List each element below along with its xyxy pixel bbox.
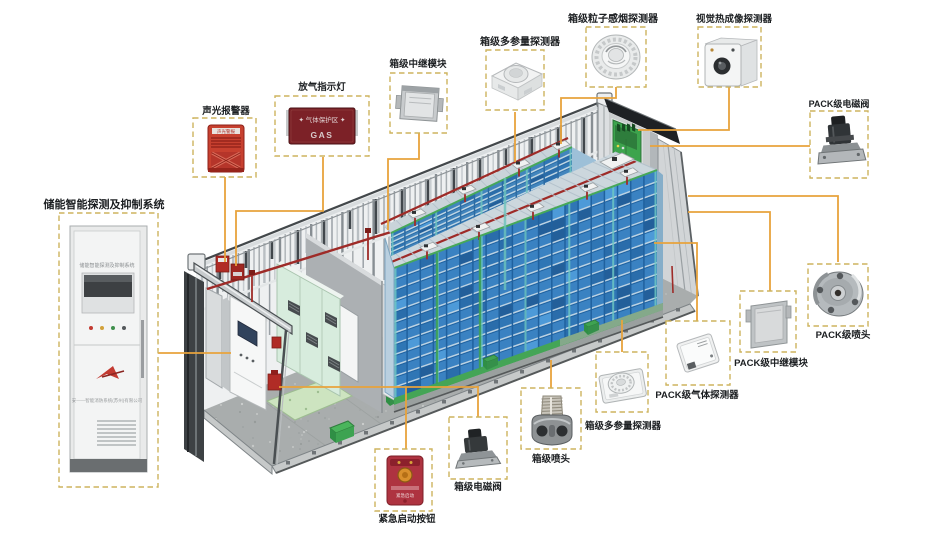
svg-text:储能智能探测及抑制系统: 储能智能探测及抑制系统	[79, 262, 134, 269]
svg-text:箱级粒子感烟探测器: 箱级粒子感烟探测器	[568, 12, 659, 25]
svg-text:箱级多参量探测器: 箱级多参量探测器	[584, 420, 662, 432]
svg-text:PACK级中继模块: PACK级中继模块	[734, 357, 808, 369]
svg-text:紧急启动: 紧急启动	[396, 492, 414, 499]
svg-text:声光警报: 声光警报	[217, 128, 235, 135]
svg-text:视觉热成像探测器: 视觉热成像探测器	[696, 13, 773, 25]
svg-text:安——智能消防系统(苏州)有限公司: 安——智能消防系统(苏州)有限公司	[72, 397, 143, 404]
svg-text:PACK级喷头: PACK级喷头	[816, 329, 871, 341]
svg-text:箱级中继模块: 箱级中继模块	[388, 58, 447, 70]
svg-text:储能智能探测及抑制系统: 储能智能探测及抑制系统	[44, 197, 165, 211]
svg-text:箱级喷头: 箱级喷头	[531, 453, 571, 465]
svg-text:箱级多参量探测器: 箱级多参量探测器	[480, 35, 561, 48]
svg-text:箱级电磁阀: 箱级电磁阀	[453, 481, 502, 493]
svg-text:放气指示灯: 放气指示灯	[297, 81, 346, 93]
svg-text:✦ 气体保护区 ✦: ✦ 气体保护区 ✦	[298, 115, 346, 124]
svg-text:GAS: GAS	[311, 130, 334, 140]
svg-text:PACK级气体探测器: PACK级气体探测器	[655, 389, 739, 401]
svg-text:PACK级电磁阀: PACK级电磁阀	[809, 98, 870, 109]
svg-text:声光报警器: 声光报警器	[201, 105, 250, 117]
svg-text:紧急启动按钮: 紧急启动按钮	[378, 513, 436, 525]
